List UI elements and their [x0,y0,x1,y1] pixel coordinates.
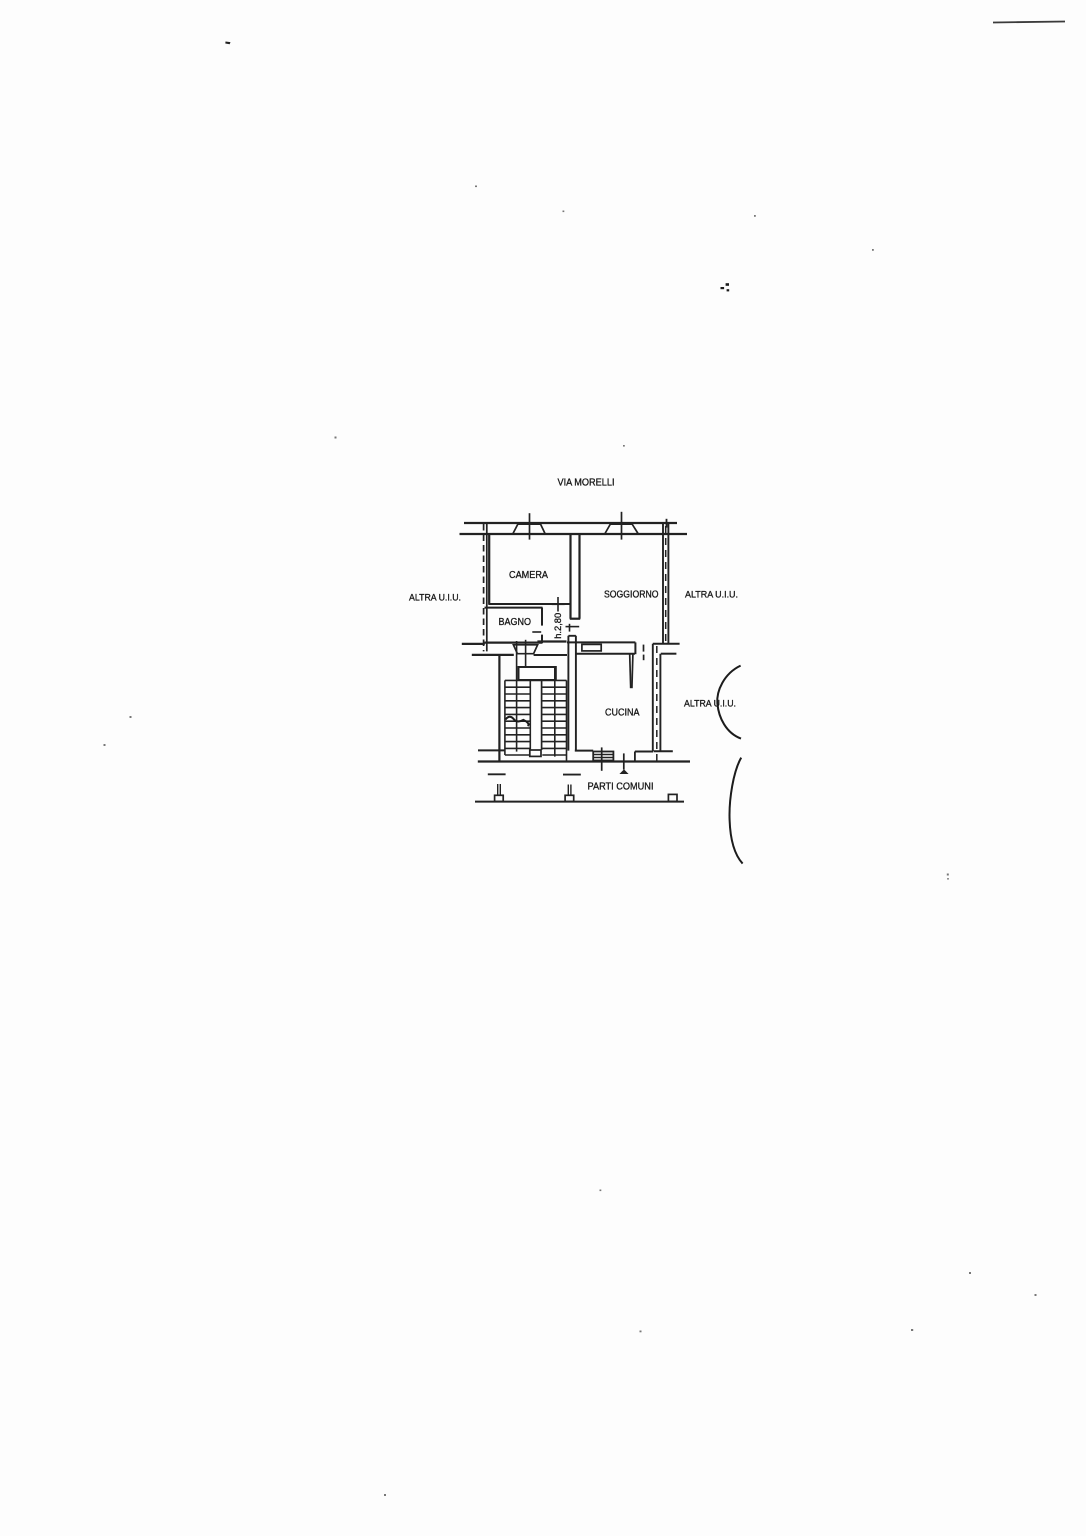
svg-text:VIA MORELLI: VIA MORELLI [558,477,615,488]
svg-text:CUCINA: CUCINA [605,707,640,718]
svg-text:h.2,80: h.2,80 [553,613,564,639]
svg-text:BAGNO: BAGNO [499,617,532,628]
svg-text:ALTRA U.I.U.: ALTRA U.I.U. [409,592,461,603]
svg-text:SOGGIORNO: SOGGIORNO [604,590,659,601]
svg-text:ALTRA U.I.U.: ALTRA U.I.U. [684,698,736,709]
svg-text:ALTRA U.I.U.: ALTRA U.I.U. [685,590,738,601]
svg-text:CAMERA: CAMERA [509,570,548,581]
svg-text:PARTI COMUNI: PARTI COMUNI [588,781,654,793]
